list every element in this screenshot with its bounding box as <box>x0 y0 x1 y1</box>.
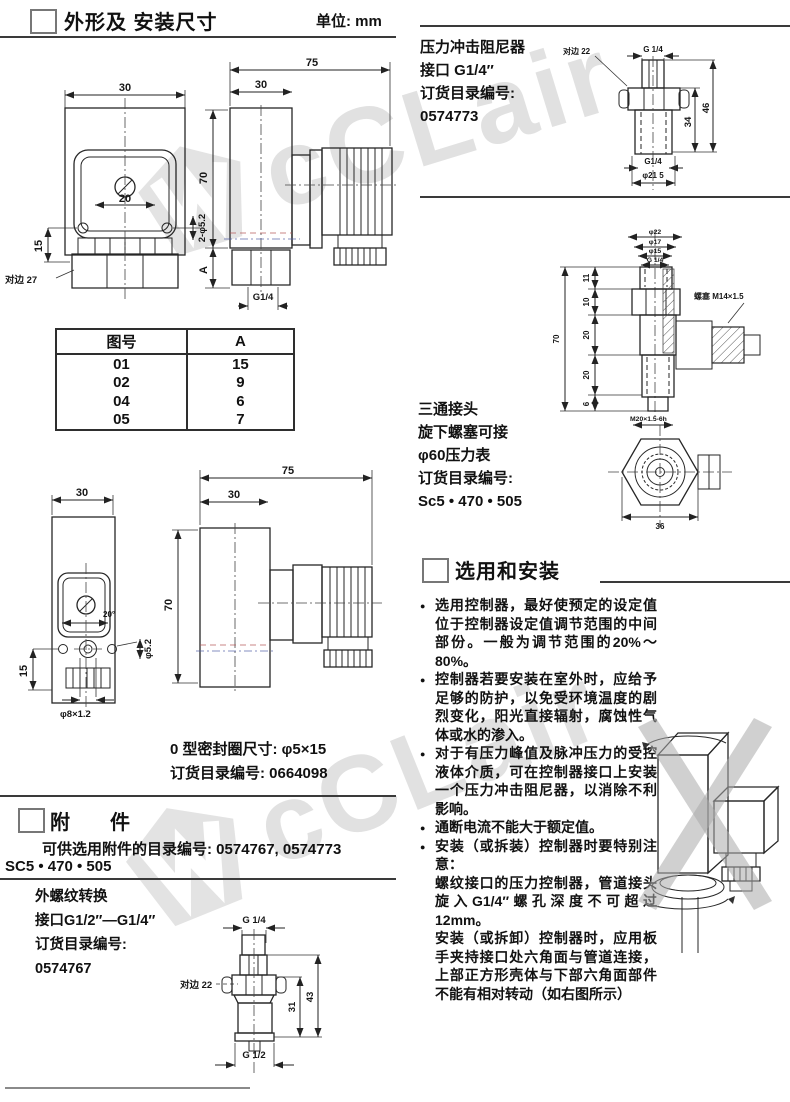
section-checkbox <box>422 558 449 583</box>
table-header: A <box>187 329 294 354</box>
forbidden-rotation-illustration <box>630 705 790 955</box>
page-title: 外形及 安装尺寸 <box>64 6 218 35</box>
install-bullet-list: 选用控制器，最好使预定的设定值位于控制器设定值调节范围的中间部份。一般为调节范围… <box>420 596 657 1003</box>
dimension-drawing-1: 30 20 2-φ5.2 15 对边 27 75 30 70 <box>0 50 400 328</box>
divider <box>420 196 790 198</box>
catalog-page: cCLair cCLair 外形及 安装尺寸 单位: mm 30 20 2 <box>0 0 790 1102</box>
table-cell: 01 <box>56 354 187 374</box>
install-bullet: 对于有压力峰值及脉冲压力的受控液体介质，可在控制器接口上安装一个压力冲击阻尼器，… <box>420 744 657 818</box>
dim-34: 34 <box>683 116 694 127</box>
install-bullet: 控制器若要安装在室外时，应给予足够的防护，以免受环境温度的剧烈变化，阳光直接辐射… <box>420 670 657 744</box>
install-title: 选用和安装 <box>455 555 560 584</box>
thread-G14-top: G 1/4 <box>643 45 663 54</box>
table-cell: 04 <box>56 392 187 411</box>
tee-order-number: Sc5 • 470 • 505 <box>418 490 522 513</box>
accessories-catalog-line2: SC5 • 470 • 505 <box>5 858 111 875</box>
adapter-drawing: G 1/4 对边 22 31 43 G 1/2 <box>150 885 400 1085</box>
dim-holes: 2-φ5.2 <box>197 214 208 242</box>
divider <box>0 36 396 38</box>
table-row: 05 7 <box>56 411 294 431</box>
dim-10: 10 <box>582 297 591 306</box>
adapter-title: 外螺纹转换 <box>35 885 155 909</box>
install-bullet: 通断电流不能大于额定值。 <box>420 818 657 837</box>
install-note: 螺纹接口的压力控制器，管道接头旋入G1/4″螺孔深度不可超过12mm。 <box>420 874 657 930</box>
unit-label: 单位: mm <box>316 10 382 31</box>
plug-label: 螺塞 M14×1.5 <box>694 291 744 301</box>
table-row: 01 15 <box>56 354 294 374</box>
table-cell: 6 <box>187 392 294 411</box>
tee-title: 三通接头 <box>418 398 522 421</box>
figure-A-table: 图号 A 01 15 02 9 04 6 05 7 <box>55 328 295 431</box>
divider <box>0 795 396 797</box>
divider <box>420 25 790 27</box>
oring-order-note: 订货目录编号: 0664098 <box>170 762 328 783</box>
damper-drawing: 对边 22 G 1/4 34 46 G1/4 φ21 5 <box>545 28 790 203</box>
accessories-catalog-line: 可供选用附件的目录编号: 0574767, 0574773 <box>42 838 341 859</box>
install-bullet: 选用控制器，最好使预定的设定值位于控制器设定值调节范围的中间部份。一般为调节范围… <box>420 596 657 670</box>
dim-d15: φ15 <box>649 248 662 255</box>
dim-11: 11 <box>582 273 591 282</box>
tee-order-label: 订货目录编号: <box>418 467 522 490</box>
thread-M20-label: M20×1.5-6h <box>630 416 667 423</box>
dim-30: 30 <box>119 82 131 94</box>
dim-30: 30 <box>228 489 240 501</box>
section-checkbox <box>18 808 45 833</box>
install-bullet: 安装（或拆装）控制器时要特别注意： <box>420 837 657 874</box>
damper-order-label: 订货目录编号: <box>420 82 525 105</box>
thread-G14: G 1/4 <box>647 257 664 264</box>
dim-43: 43 <box>305 992 316 1003</box>
dim-70: 70 <box>163 599 175 611</box>
table-cell: 15 <box>187 354 294 374</box>
dim-46: 46 <box>701 103 712 114</box>
hex-flats-label: 对边 22 <box>563 46 591 56</box>
dim-20a: 20 <box>582 330 591 339</box>
dim-30: 30 <box>76 487 88 499</box>
damper-port: 接口 G1/4″ <box>420 59 525 82</box>
dim-A: A <box>198 266 210 274</box>
divider <box>0 878 396 880</box>
tee-line3: φ60压力表 <box>418 444 522 467</box>
damper-order-number: 0574773 <box>420 105 525 128</box>
dim-31: 31 <box>287 1001 298 1012</box>
dim-15: 15 <box>33 240 45 252</box>
damper-text-block: 压力冲击阻尼器 接口 G1/4″ 订货目录编号: 0574773 <box>420 36 525 128</box>
oring-size-note: 0 型密封圈尺寸: φ5×15 <box>170 738 326 759</box>
tee-text-block: 三通接头 旋下螺塞可接 φ60压力表 订货目录编号: Sc5 • 470 • 5… <box>418 398 522 513</box>
accessories-title: 附 件 <box>50 806 140 835</box>
dim-d17: φ17 <box>649 239 662 246</box>
dim-15: 15 <box>18 665 30 677</box>
thread-G14-bottom: G1/4 <box>644 157 662 166</box>
hex-flats-label: 对边 22 <box>180 979 212 991</box>
dim-20b: 20 <box>582 370 591 379</box>
dim-hole: φ5.2 <box>143 639 154 659</box>
adapter-port: 接口G1/2″—G1/4″ <box>35 909 155 933</box>
thread-G14: G 1/4 <box>242 915 266 926</box>
divider <box>600 581 790 583</box>
table-cell: 9 <box>187 374 294 393</box>
install-note: 安装（或拆卸）控制器时，应用板手夹持接口处六角面与管道连接，上部正方形壳体与下部… <box>420 929 657 1003</box>
dim-75: 75 <box>306 57 318 69</box>
table-cell: 7 <box>187 411 294 431</box>
table-cell: 05 <box>56 411 187 431</box>
dim-70: 70 <box>552 334 561 343</box>
tee-line2: 旋下螺塞可接 <box>418 421 522 444</box>
divider <box>5 1087 250 1089</box>
hex-flats-label: 对边 27 <box>5 274 37 286</box>
dim-20deg: 20° <box>103 610 115 619</box>
table-row: 02 9 <box>56 374 294 393</box>
thread-G14: G1/4 <box>253 292 274 303</box>
dim-d22: φ22 <box>649 229 662 236</box>
dim-dia215: φ21 5 <box>642 171 664 180</box>
dim-6: 6 <box>582 401 591 406</box>
table-row: 04 6 <box>56 392 294 411</box>
adapter-order-number: 0574767 <box>35 957 155 981</box>
table-cell: 02 <box>56 374 187 393</box>
dim-75: 75 <box>282 465 294 477</box>
dim-30: 30 <box>255 79 267 91</box>
adapter-order-label: 订货目录编号: <box>35 933 155 957</box>
damper-title: 压力冲击阻尼器 <box>420 36 525 59</box>
section-checkbox <box>30 9 57 34</box>
dim-36: 36 <box>656 522 665 531</box>
table-header: 图号 <box>56 329 187 354</box>
dim-70: 70 <box>198 172 210 184</box>
adapter-text-block: 外螺纹转换 接口G1/2″—G1/4″ 订货目录编号: 0574767 <box>35 885 155 981</box>
